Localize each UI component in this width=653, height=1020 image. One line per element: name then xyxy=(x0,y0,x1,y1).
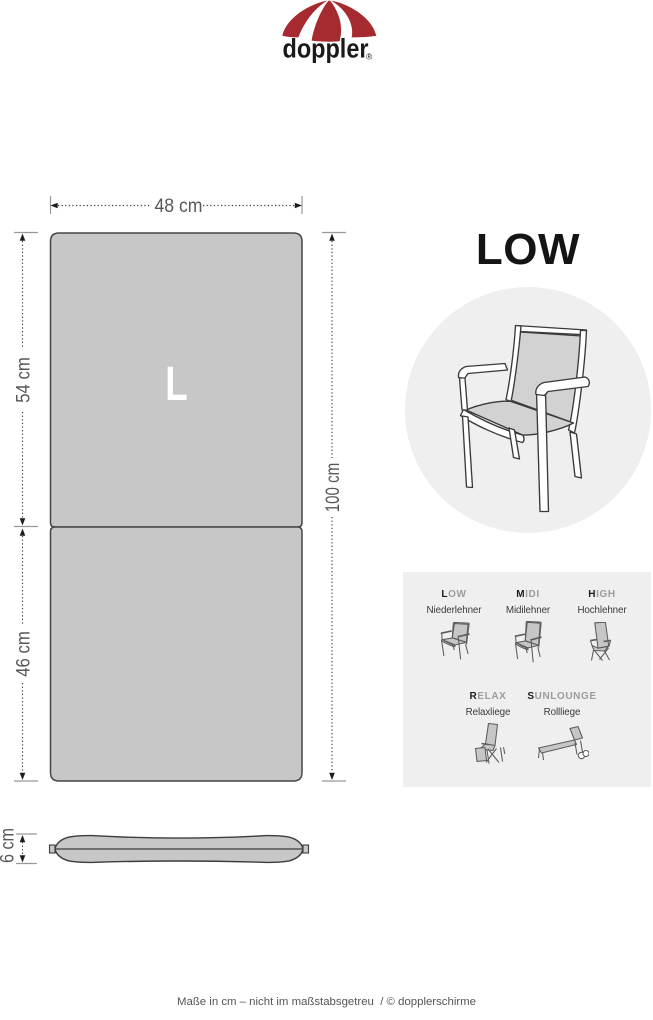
svg-text:100 cm: 100 cm xyxy=(322,463,344,513)
svg-text:L: L xyxy=(165,358,188,411)
svg-text:54 cm: 54 cm xyxy=(13,357,35,403)
svg-text:46 cm: 46 cm xyxy=(13,631,35,677)
svg-text:48 cm: 48 cm xyxy=(155,195,203,217)
svg-text:6 cm: 6 cm xyxy=(0,828,19,863)
